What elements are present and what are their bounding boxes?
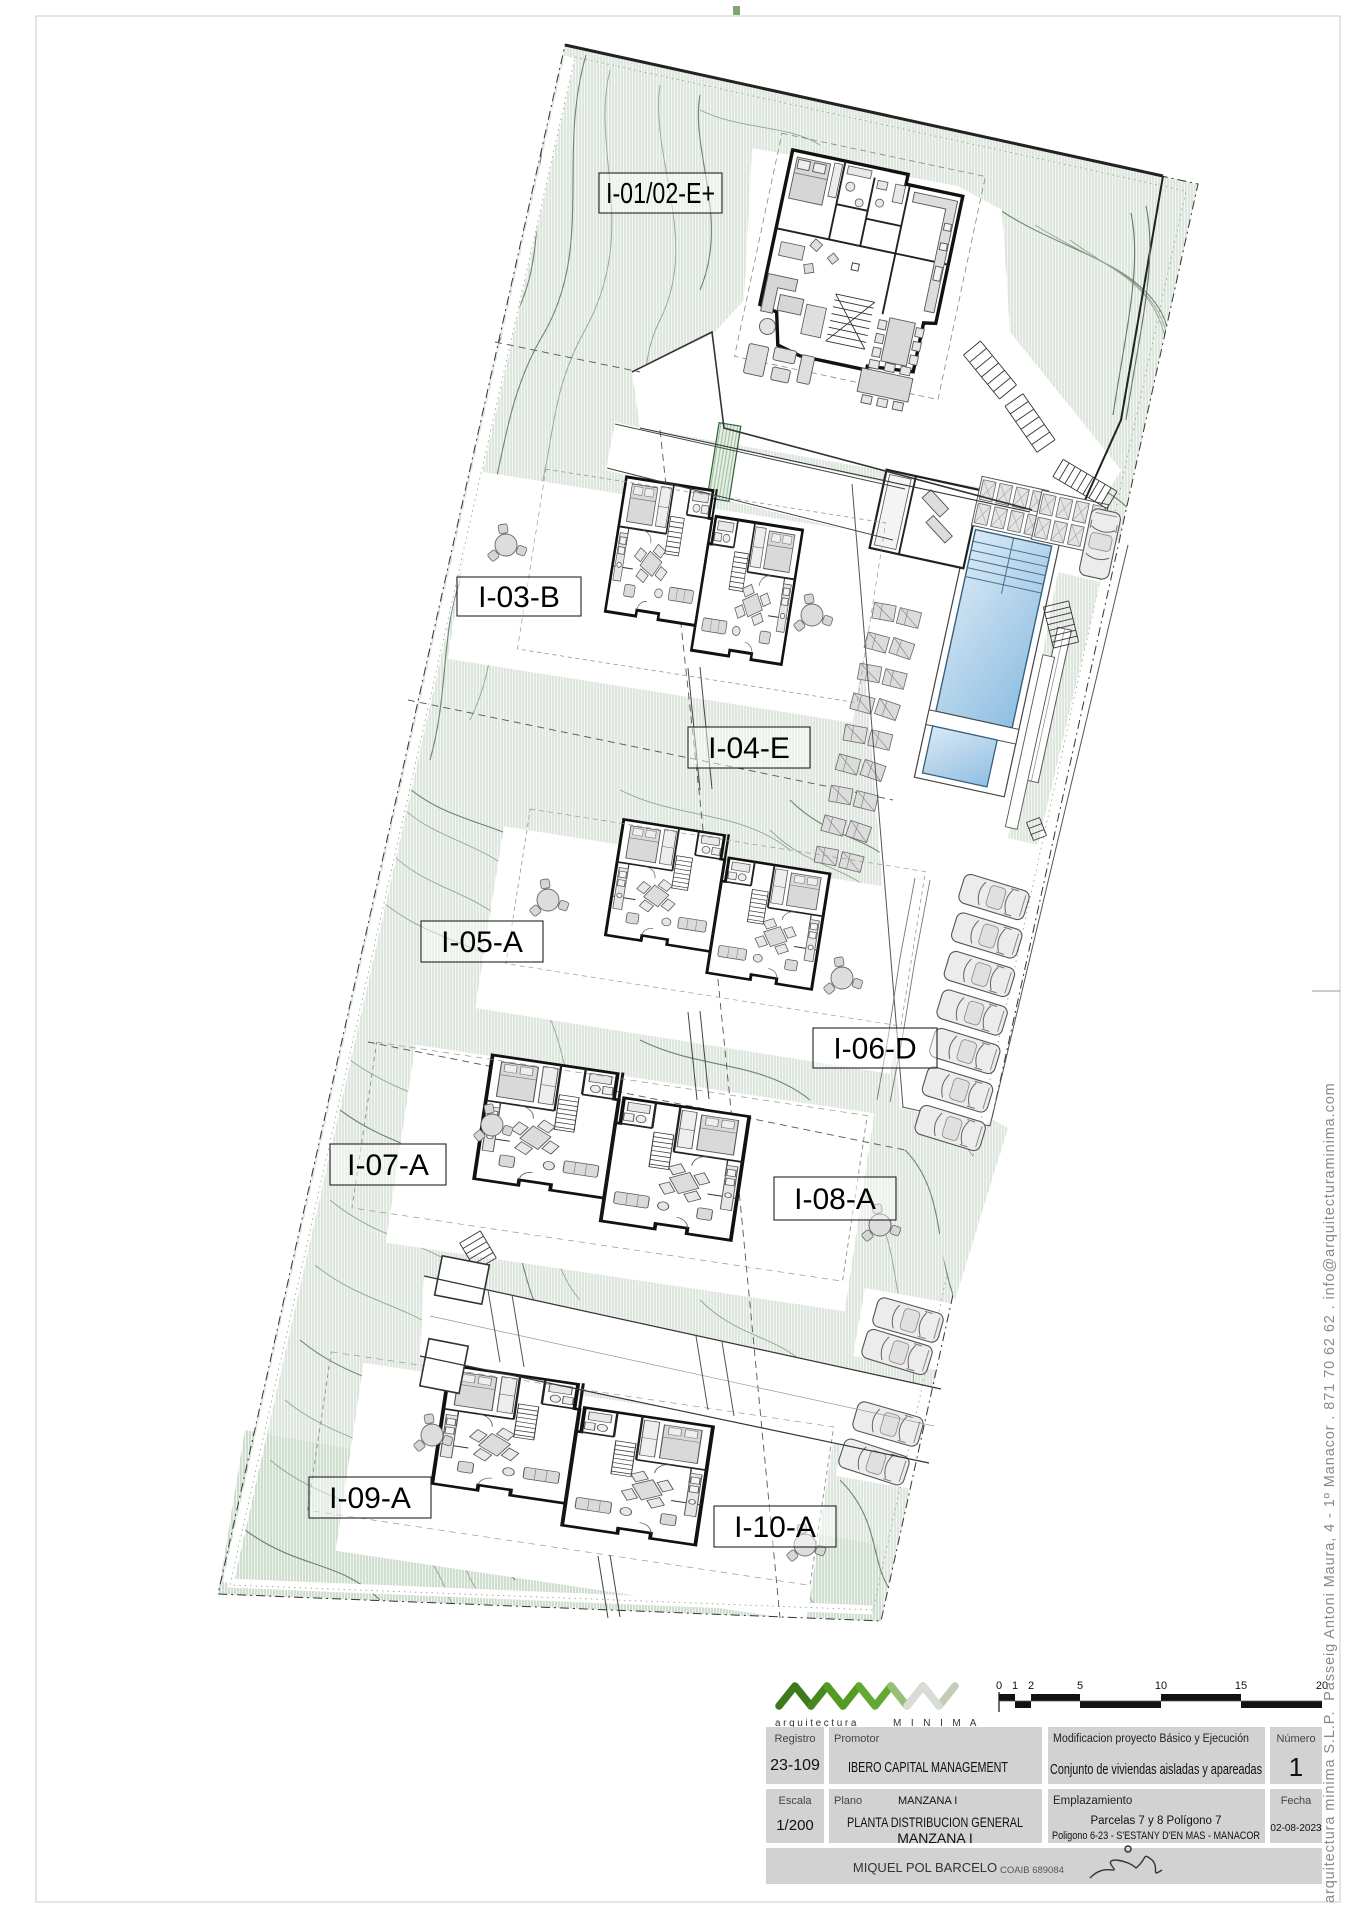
svg-text:Escala: Escala [778,1795,812,1807]
svg-text:Conjunto de viviendas aisladas: Conjunto de viviendas aisladas y aparead… [1050,1762,1262,1778]
svg-text:I-10-A: I-10-A [734,1511,816,1544]
svg-text:Plano: Plano [834,1795,862,1807]
svg-text:I-04-E: I-04-E [708,732,790,765]
svg-text:PLANTA DISTRIBUCION GENERAL: PLANTA DISTRIBUCION GENERAL [847,1814,1023,1830]
svg-text:COAIB 689084: COAIB 689084 [1000,1865,1064,1876]
svg-text:MANZANA I: MANZANA I [898,1795,957,1807]
svg-text:I-08-A: I-08-A [794,1183,876,1216]
svg-text:Emplazamiento: Emplazamiento [1053,1795,1132,1807]
svg-text:23-109: 23-109 [770,1757,820,1774]
svg-text:arquitectura minima S.L.P. Pa: arquitectura minima S.L.P. Passeig Anton… [1322,1082,1338,1903]
svg-text:02-08-2023: 02-08-2023 [1270,1823,1322,1834]
svg-text:MANZANA I: MANZANA I [897,1830,972,1846]
svg-text:MIQUEL POL BARCELO: MIQUEL POL BARCELO [853,1860,997,1875]
svg-text:Promotor: Promotor [834,1733,880,1745]
svg-text:I-01/02-E+: I-01/02-E+ [606,178,715,210]
svg-text:5: 5 [1077,1680,1083,1692]
svg-text:I-05-A: I-05-A [441,926,523,959]
svg-text:2: 2 [1028,1680,1034,1692]
svg-text:I-06-D: I-06-D [833,1033,916,1066]
svg-text:Modificacion proyecto Básico y: Modificacion proyecto Básico y Ejecución [1053,1733,1249,1745]
svg-text:I-03-B: I-03-B [478,581,560,614]
svg-text:IBERO CAPITAL MANAGEMENT: IBERO CAPITAL MANAGEMENT [848,1760,1008,1776]
svg-text:Registro: Registro [775,1733,816,1745]
svg-text:10: 10 [1155,1680,1167,1692]
svg-text:1/200: 1/200 [776,1817,814,1834]
svg-text:1: 1 [1289,1752,1303,1782]
svg-text:Número: Número [1276,1733,1315,1745]
svg-text:I-07-A: I-07-A [347,1149,429,1182]
svg-text:Fecha: Fecha [1281,1795,1312,1807]
svg-text:1: 1 [1012,1680,1018,1692]
svg-text:Parcelas 7 y 8 Polígono 7: Parcelas 7 y 8 Polígono 7 [1090,1815,1221,1827]
svg-text:Poligono 6-23 - S'ESTANY D'EN: Poligono 6-23 - S'ESTANY D'EN MAS - MANA… [1052,1830,1260,1842]
svg-text:15: 15 [1235,1680,1247,1692]
svg-text:I-09-A: I-09-A [329,1482,411,1515]
svg-text:0: 0 [996,1680,1002,1692]
